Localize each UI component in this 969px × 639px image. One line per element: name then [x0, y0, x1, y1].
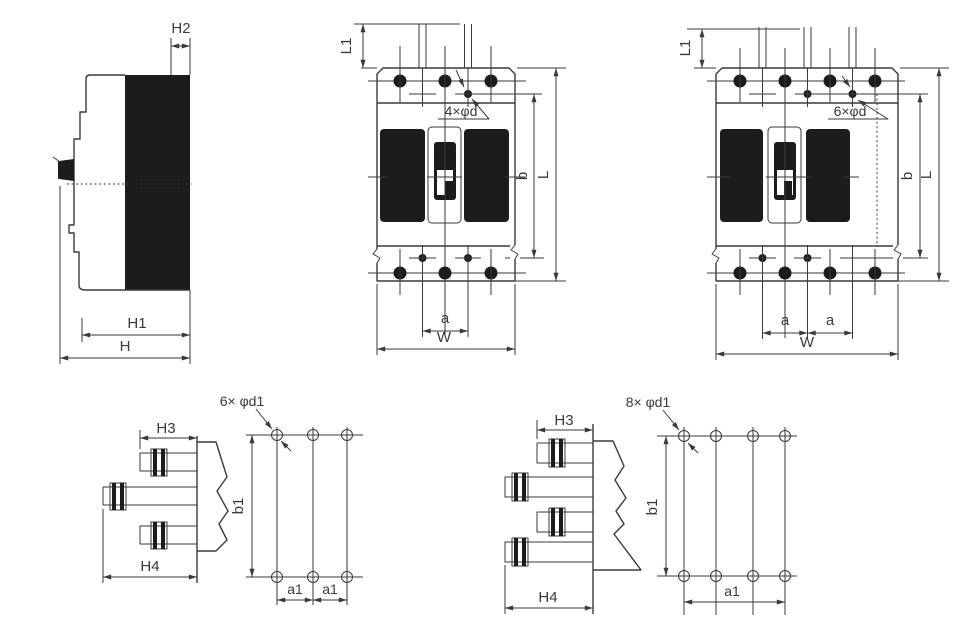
toggle-handle-side: [58, 159, 74, 181]
stud-top: [140, 449, 197, 476]
mccb-dimension-drawing: H2 H1 H: [0, 0, 969, 639]
dim-label-b1-3p: b1: [230, 498, 247, 515]
dim-label-w-4p: W: [800, 334, 815, 351]
drill-plan-3pole: 6× φd1 b1 a1 a1: [220, 393, 363, 605]
dim-label-b-4p: b: [899, 172, 916, 180]
breaker-side-black-half: [125, 75, 190, 290]
dim-label-h: H: [120, 338, 131, 355]
hole-callout-rear-3p: 6× φd1: [220, 393, 265, 409]
dim-label-l-3p: L: [535, 171, 552, 179]
dim-h2: H2: [171, 20, 191, 75]
dim-b1-3p: b1: [230, 435, 252, 577]
dim-label-a-right: a: [826, 312, 835, 329]
dim-label-h3-3p: H3: [156, 420, 175, 437]
dim-l1-3p: L1: [338, 24, 460, 68]
dim-a1-4p: a1: [684, 583, 785, 602]
mounting-plate-break-edge-4p: [593, 441, 641, 570]
dim-label-h3-4p: H3: [554, 412, 573, 429]
stud-bottom: [140, 522, 197, 549]
dim-h1: H1: [82, 290, 190, 364]
terminal-screws-bottom: [368, 249, 526, 295]
handle-window-notch: [445, 181, 453, 195]
dim-a1-3p: a1 a1: [277, 581, 347, 600]
hole-callout-4p: 6×φd: [834, 103, 867, 119]
mounting-holes-top: 4×φd: [409, 68, 542, 119]
dim-b1-4p: b1: [644, 436, 666, 576]
rear-connection-4pole: H3 H4 8× φd1 b1: [505, 394, 797, 615]
side-view: H2 H1 H: [53, 20, 192, 364]
dim-label-a1-4p: a1: [724, 583, 740, 599]
handle-tip-line: [53, 157, 60, 162]
dim-b-4p: b: [899, 94, 920, 258]
dim-label-a-left: a: [781, 312, 790, 329]
dim-label-l-4p: L: [918, 171, 935, 179]
arc-chute-left: [380, 129, 425, 222]
dim-label-b-3p: b: [514, 172, 531, 180]
dim-label-h1: H1: [127, 315, 146, 332]
mounting-holes-top-4p: 6×φd: [749, 68, 928, 119]
stud-4: [505, 538, 593, 566]
arc-chute-right: [464, 129, 509, 222]
stud-2: [505, 473, 593, 501]
mounting-plate-break-edge: [197, 442, 228, 551]
hole-callout-3p: 4×φd: [445, 103, 478, 119]
front-view-3pole: 4×φd: [338, 24, 566, 355]
mounting-holes-bottom: [409, 245, 544, 337]
dim-label-h4-3p: H4: [140, 558, 159, 575]
dim-label-a1-right: a1: [322, 581, 338, 597]
dim-label-w-3p: W: [437, 329, 452, 346]
mounting-holes-bottom-4p: [749, 245, 928, 339]
dim-h4-4p: H4: [505, 565, 593, 614]
edge-break-marks: [372, 245, 520, 263]
dim-label-l1-4p: L1: [677, 40, 694, 57]
dim-l1-4p: L1: [677, 29, 800, 68]
dim-label-b1-4p: b1: [644, 499, 661, 516]
dim-label-a-3p: a: [441, 310, 450, 327]
dim-h4-3p: H4: [103, 509, 197, 583]
mccb-dimension-drawing-page: H2 H1 H: [0, 0, 969, 639]
terminal-tabs-4p: [759, 27, 856, 68]
dim-b-3p: b: [514, 94, 534, 258]
dim-label-a1-left: a1: [287, 581, 303, 597]
stud-3: [537, 508, 593, 536]
rear-connection-3pole: H3 H4 6× φd1 b1: [103, 393, 363, 605]
dim-label-h4-4p: H4: [538, 589, 557, 606]
hole-callout-rear-4p: 8× φd1: [626, 394, 671, 410]
arc-chute-right-4p: [806, 129, 850, 222]
dim-label-l1-3p: L1: [338, 38, 355, 55]
front-view-4pole: 6×φd: [677, 27, 949, 360]
drill-plan-4pole: 8× φd1 b1 a1: [626, 394, 797, 615]
arc-chute-left-4p: [720, 129, 763, 222]
stud-1: [537, 439, 593, 467]
dim-h3-3p: H3: [140, 420, 197, 449]
dim-h3-4p: H3: [537, 412, 593, 439]
dim-label-h2: H2: [171, 20, 190, 37]
stud-middle: [103, 483, 197, 510]
